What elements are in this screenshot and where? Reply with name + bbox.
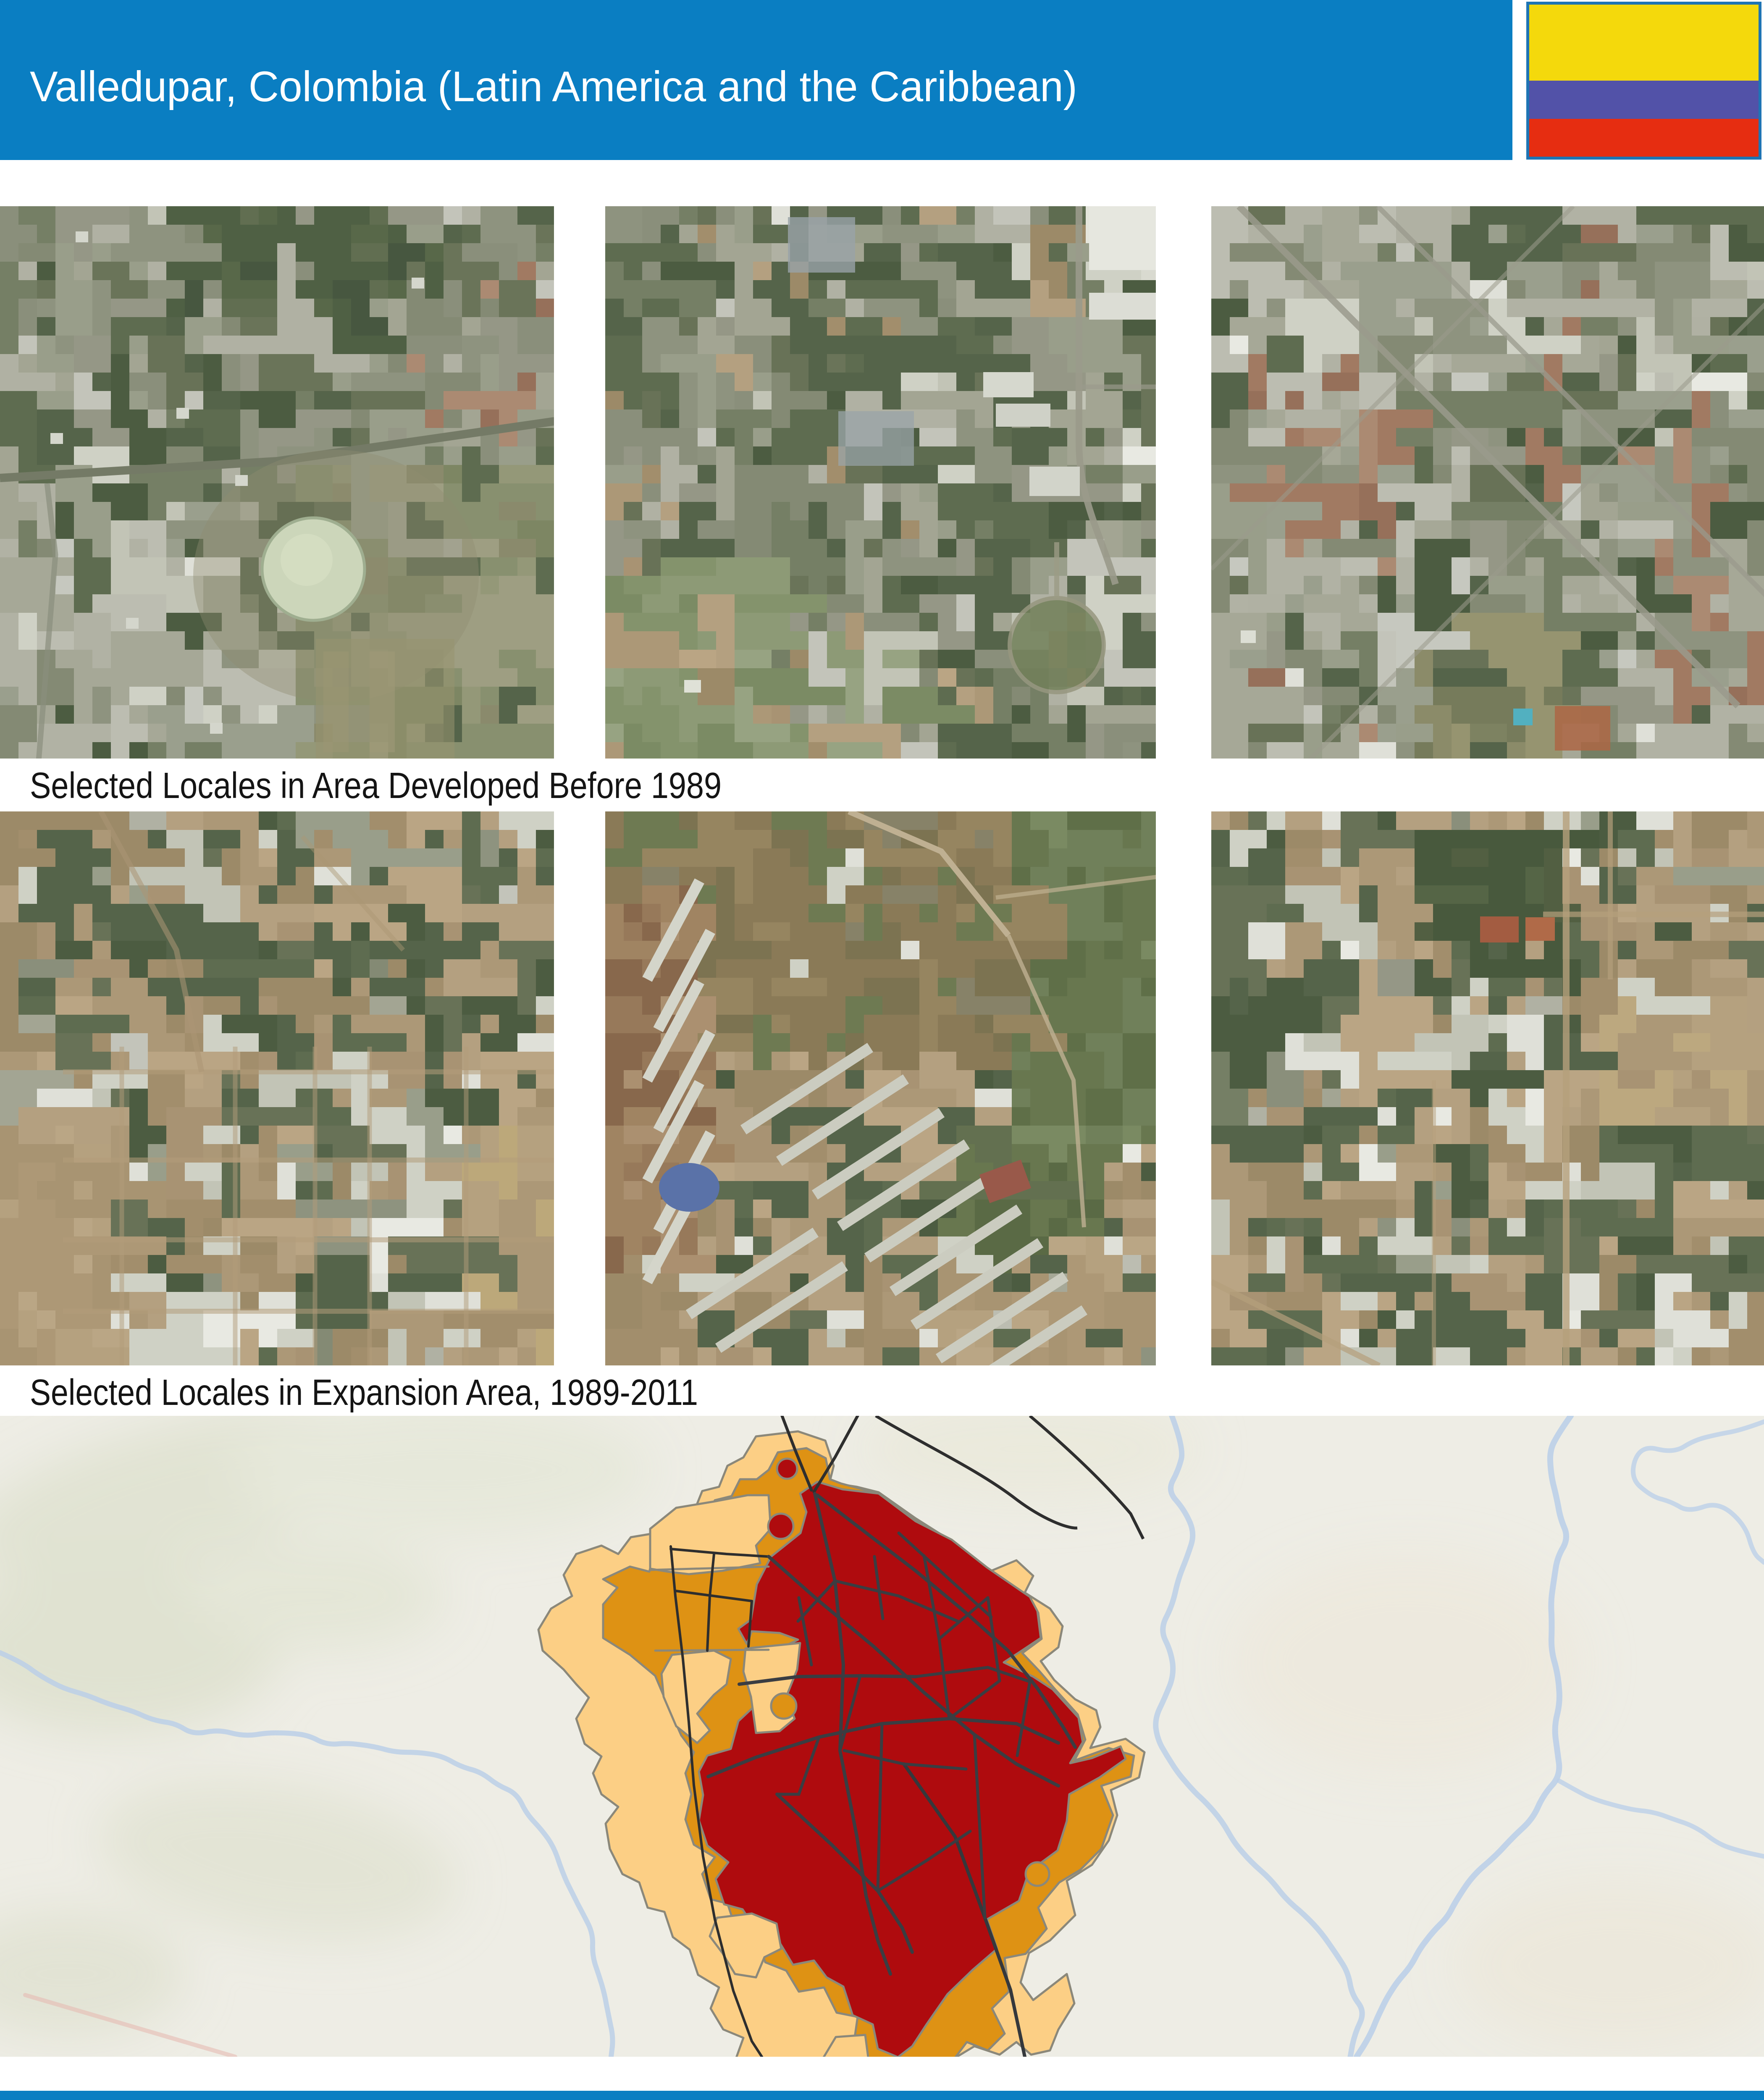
svg-text:Selected Locales in Area Devel: Selected Locales in Area Developed Befor…	[30, 765, 722, 806]
svg-text:Valledupar, Colombia (Latin Am: Valledupar, Colombia (Latin America and …	[30, 63, 1077, 110]
